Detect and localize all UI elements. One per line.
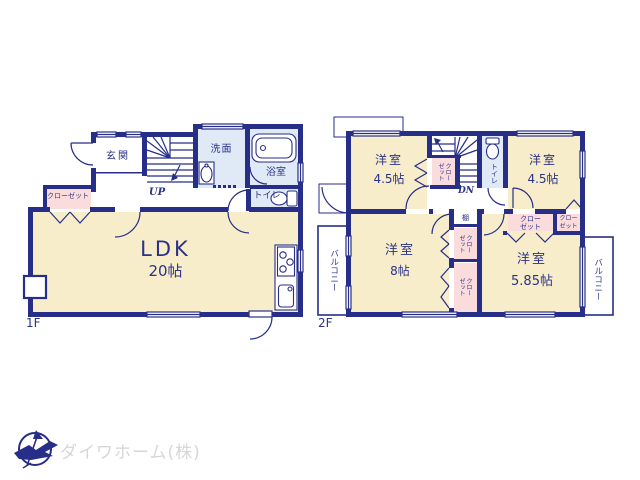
entrance-label: 玄関 <box>94 149 142 163</box>
washbasin-icon <box>199 162 214 184</box>
washroom-window <box>202 124 243 129</box>
room-ne-label: 洋室 <box>506 153 580 168</box>
stairs-down-label: DN <box>452 186 480 198</box>
ldk-window <box>147 312 200 317</box>
tr-closet-narrow-label: クローゼット <box>557 214 580 231</box>
ldk-label: LDK <box>33 238 298 262</box>
ldk-exterior-door <box>249 311 272 339</box>
room-ne-window-top <box>517 131 573 136</box>
room-se-size: 5.85帖 <box>483 274 581 290</box>
room-sw-window-bottom <box>402 312 457 317</box>
room-se-label: 洋室 <box>483 252 581 268</box>
company-logo-icon <box>14 430 58 468</box>
balcony-left-label: バルコニー <box>326 230 340 310</box>
room-nw-size: 4.5帖 <box>351 172 427 187</box>
shelf-label: 棚 <box>454 213 477 224</box>
ldk-size-label: 20帖 <box>33 262 298 280</box>
floor-plan: 玄関 UP 洗面 浴室 トイレ クローゼット LDK 20帖 1F 洋室 4.5… <box>0 0 640 480</box>
room-sw-floor <box>351 214 449 312</box>
room-ne-size: 4.5帖 <box>506 172 580 187</box>
bathroom-window <box>298 163 303 182</box>
toilet2-door <box>488 188 505 205</box>
toilet1-door <box>228 190 249 211</box>
washroom-label: 洗面 <box>198 143 245 156</box>
room-sw-label: 洋室 <box>351 243 449 259</box>
stair-closet-label: クローゼット <box>433 159 455 185</box>
stairs-up <box>147 137 193 182</box>
stairs-down-arrow <box>434 138 443 152</box>
entrance-window-2 <box>126 132 141 137</box>
floor1-label: 1F <box>26 316 58 331</box>
stairs-up-label: UP <box>144 186 170 199</box>
bathtub-icon <box>252 134 296 162</box>
mid-closet-lower-label: クローゼット <box>454 270 476 304</box>
bathroom-label: 浴室 <box>254 166 298 179</box>
company-logo-text: ダイワホーム(株) <box>60 441 230 465</box>
toilet2-label: トイレ <box>488 158 499 188</box>
kitchen-window <box>298 250 303 272</box>
room-ne-window-right <box>580 151 585 178</box>
entrance-door <box>71 143 93 165</box>
tr-closet-wide-label: クローゼット <box>508 214 553 231</box>
room-se-window-bottom <box>505 312 555 317</box>
floor1-plan <box>24 124 303 339</box>
toilet1-label: トイレ <box>250 191 284 203</box>
mid-closet-upper-label: クローゼット <box>454 229 476 258</box>
room-sw-size: 8帖 <box>351 264 449 279</box>
room-sw-window-2 <box>346 286 351 309</box>
entrance-window <box>97 132 116 137</box>
closet1-label: クローゼット <box>45 191 91 202</box>
balcony-right-label: バルコニー <box>590 244 604 314</box>
floor2-label: 2F <box>318 316 350 331</box>
room-nw-label: 洋室 <box>351 153 427 168</box>
room-nw-window <box>353 131 400 136</box>
stairs-up-arrow <box>171 165 180 181</box>
toilet2-icon <box>486 138 499 159</box>
